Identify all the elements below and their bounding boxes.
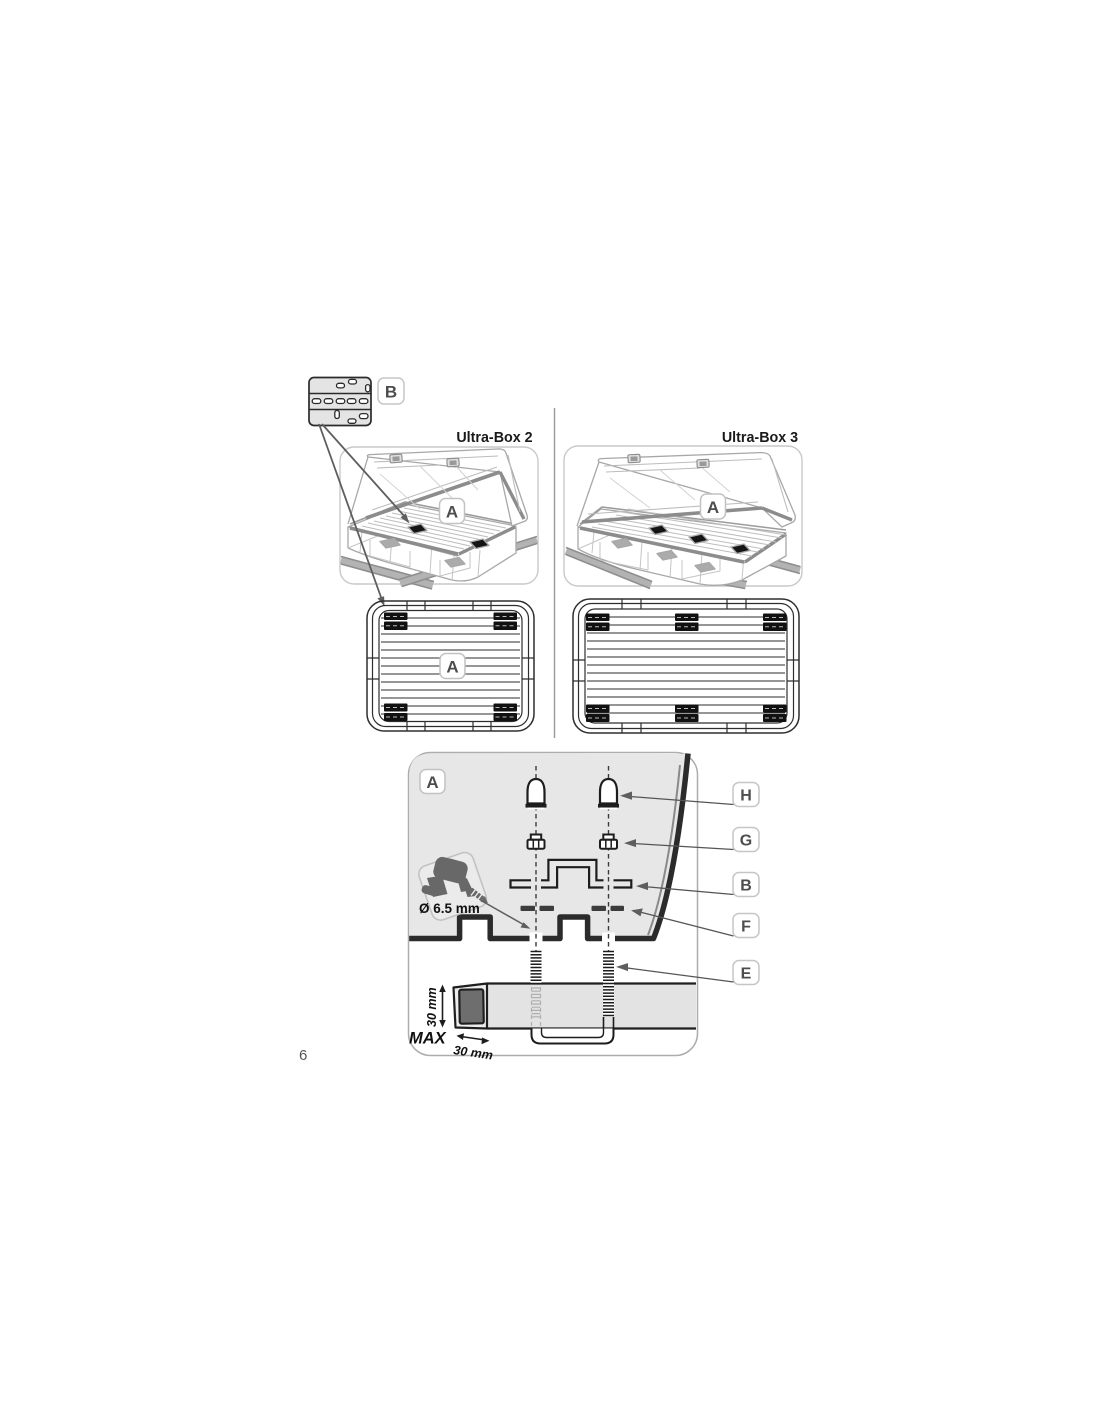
svg-text:30 mm: 30 mm — [425, 987, 439, 1027]
svg-text:B: B — [385, 383, 397, 402]
svg-text:A: A — [426, 773, 438, 792]
svg-text:A: A — [446, 503, 458, 522]
svg-text:E: E — [741, 966, 752, 983]
svg-text:H: H — [740, 788, 752, 805]
svg-text:A: A — [446, 658, 458, 677]
svg-text:6: 6 — [299, 1047, 307, 1064]
svg-text:A: A — [707, 498, 719, 517]
svg-text:B: B — [740, 878, 752, 895]
svg-text:G: G — [740, 833, 752, 850]
svg-text:Ø 6.5 mm: Ø 6.5 mm — [419, 901, 480, 916]
svg-text:Ultra-Box 3: Ultra-Box 3 — [722, 430, 798, 446]
svg-text:MAX: MAX — [409, 1030, 447, 1048]
svg-text:F: F — [741, 919, 751, 936]
svg-text:Ultra-Box 2: Ultra-Box 2 — [456, 430, 532, 446]
